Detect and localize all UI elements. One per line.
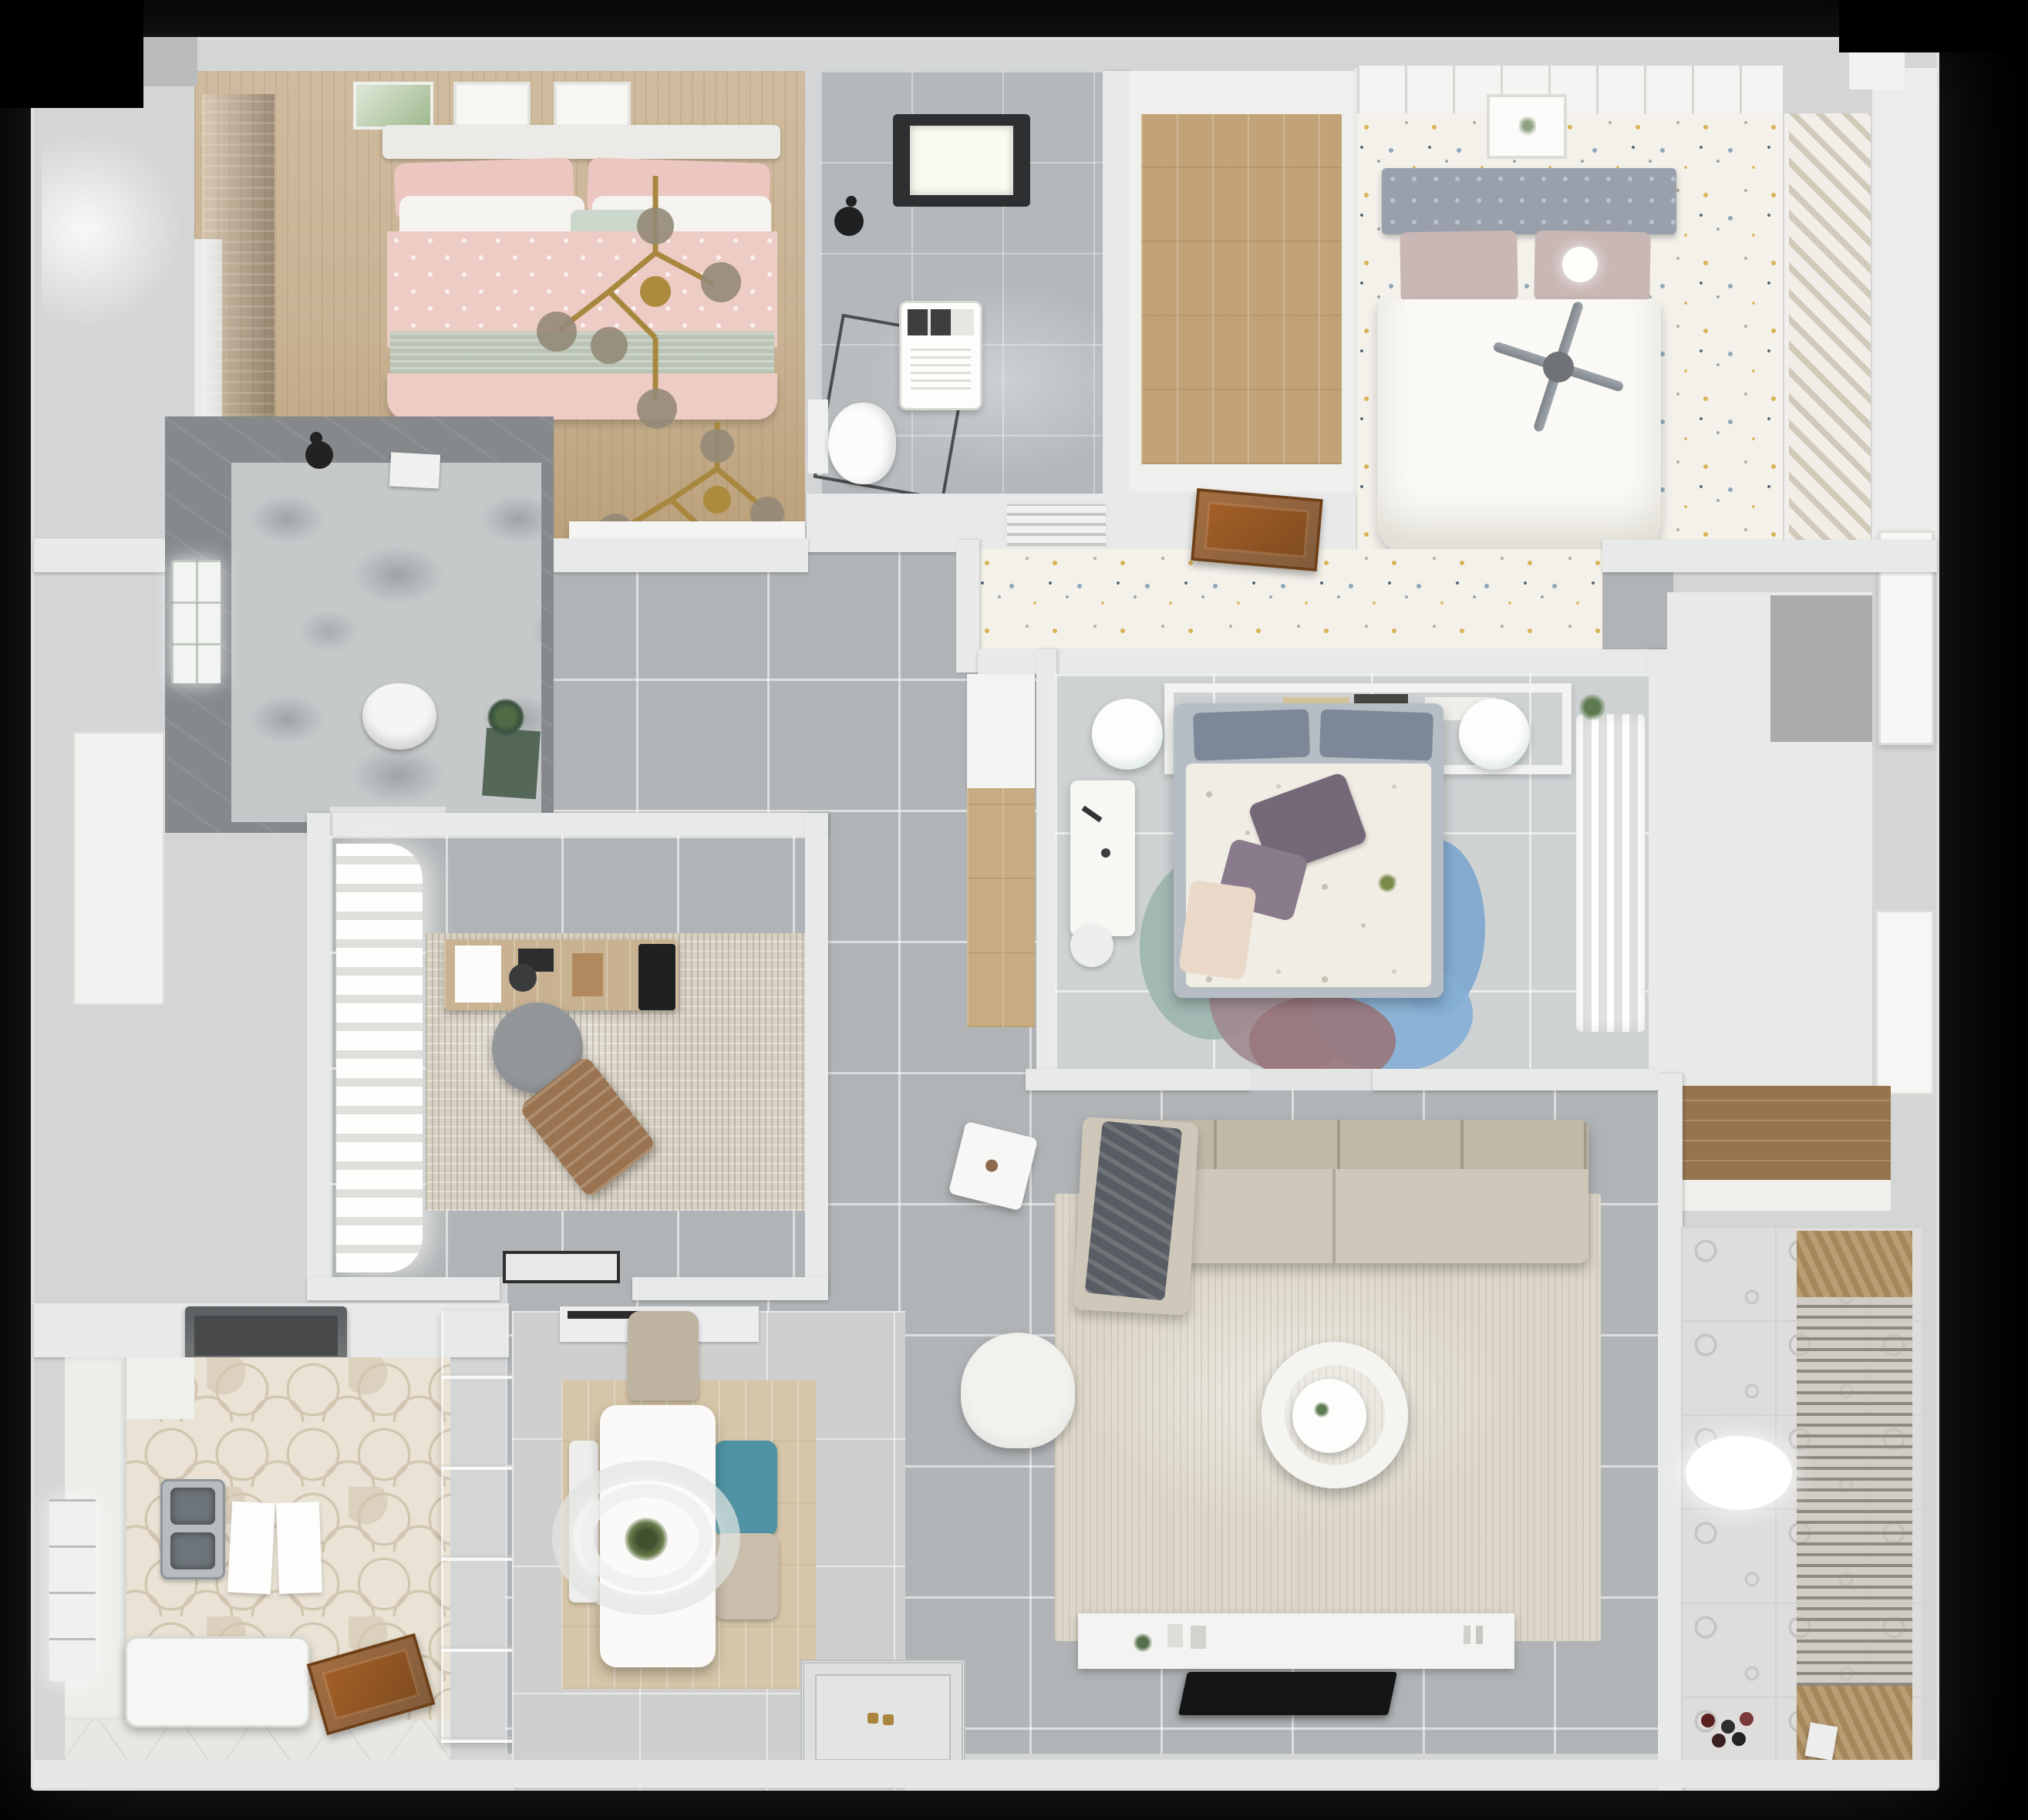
wall bbox=[307, 813, 828, 836]
wall bbox=[1658, 1073, 1683, 1791]
desk-cup bbox=[1101, 848, 1110, 858]
floorplan-scene bbox=[0, 0, 2028, 1820]
toilet bbox=[828, 403, 896, 484]
monitor bbox=[638, 944, 675, 1010]
outer-wall-bottom bbox=[34, 1760, 1936, 1788]
wall-art-green bbox=[353, 82, 433, 130]
storage-front bbox=[1670, 1180, 1891, 1211]
wall bbox=[307, 813, 330, 1297]
towel-box bbox=[389, 452, 440, 488]
bg-notch bbox=[0, 0, 143, 108]
hood-vent bbox=[194, 1316, 338, 1356]
skylight-glass bbox=[910, 126, 1013, 195]
toilet bbox=[362, 683, 436, 750]
drying-rack bbox=[1797, 1231, 1912, 1761]
sprig-green bbox=[1377, 873, 1397, 893]
bed-headboard bbox=[382, 125, 780, 159]
sink-basin bbox=[170, 1488, 215, 1525]
console-plant bbox=[1134, 1633, 1152, 1652]
rack-wood-band bbox=[1797, 1231, 1912, 1297]
dining-chair bbox=[628, 1311, 699, 1400]
study-doormat bbox=[503, 1251, 620, 1283]
pillow-cream bbox=[1178, 880, 1257, 981]
dark-block bbox=[1770, 595, 1872, 742]
storage-box bbox=[1804, 1722, 1838, 1761]
left-wall-glow bbox=[42, 130, 185, 330]
left-wall-door bbox=[72, 731, 165, 1006]
wall bbox=[307, 1277, 500, 1300]
bg-notch bbox=[1839, 0, 2028, 52]
side-table-decor bbox=[984, 1158, 999, 1173]
desk-box bbox=[572, 953, 603, 996]
wall-art-frame bbox=[554, 82, 631, 130]
closet-door bbox=[1875, 910, 1934, 1095]
plant-centerpiece bbox=[625, 1518, 668, 1561]
sofa-seat-split bbox=[1332, 1169, 1336, 1263]
desk-items bbox=[1082, 806, 1103, 823]
toilet-tank bbox=[808, 399, 828, 474]
duvet-white bbox=[1377, 299, 1661, 554]
gold-handle bbox=[867, 1713, 878, 1724]
desk-chair bbox=[1070, 924, 1113, 967]
apartment-plan bbox=[31, 37, 1939, 1791]
console-bottles bbox=[1464, 1626, 1470, 1644]
wall bbox=[632, 1277, 828, 1300]
entry-door-mat bbox=[800, 1660, 965, 1775]
nook-wood-floor bbox=[967, 788, 1035, 1027]
tufted-headboard bbox=[1382, 168, 1676, 234]
storage-wood-cabinet bbox=[1670, 1086, 1891, 1181]
sheer-wardrobe bbox=[1576, 714, 1646, 1032]
louver-wardrobe bbox=[1784, 113, 1871, 550]
wall bbox=[1036, 649, 1056, 1089]
balcony-ceiling-light bbox=[1686, 1436, 1792, 1510]
coffee-table-inner bbox=[1292, 1379, 1366, 1453]
pouf-left bbox=[1092, 699, 1163, 770]
nook-cabinet bbox=[967, 674, 1035, 788]
shower-head-icon bbox=[305, 441, 333, 469]
wall-art bbox=[1487, 94, 1567, 159]
wall bbox=[1103, 71, 1129, 512]
wall bbox=[1026, 1069, 1249, 1090]
wall bbox=[805, 813, 828, 1297]
cutting-board bbox=[227, 1501, 275, 1595]
desk-papers bbox=[455, 945, 501, 1003]
wall bbox=[1647, 649, 1667, 1089]
fan-hub bbox=[1543, 352, 1574, 383]
wall bbox=[978, 649, 1667, 674]
glass-cabinet bbox=[441, 1311, 512, 1743]
open-wood-door bbox=[1191, 488, 1323, 571]
washing-machine bbox=[899, 301, 982, 410]
wall-art-frame bbox=[453, 82, 531, 130]
art-plant-sketch bbox=[1519, 114, 1536, 137]
window bbox=[171, 560, 221, 683]
sink-basin bbox=[170, 1532, 215, 1569]
desk bbox=[1070, 780, 1135, 936]
toys bbox=[1701, 1714, 1715, 1727]
pouf-right bbox=[1459, 699, 1530, 770]
pillow-mauve bbox=[1400, 231, 1518, 304]
ac-vent bbox=[1002, 500, 1110, 551]
washer-label bbox=[911, 343, 971, 389]
billow-curtains bbox=[336, 844, 423, 1272]
room-bedroom-white-ceiling bbox=[1357, 66, 1783, 115]
wall bbox=[1373, 1069, 1667, 1090]
double-sink bbox=[160, 1479, 225, 1579]
shelf-plant bbox=[1579, 694, 1605, 720]
table-plant bbox=[1314, 1402, 1329, 1417]
desk-speaker bbox=[509, 964, 537, 992]
washer-controls bbox=[908, 309, 974, 335]
door-gap-light bbox=[1249, 1069, 1373, 1090]
wall bbox=[956, 540, 979, 672]
wall bbox=[1602, 540, 1937, 572]
armchair bbox=[961, 1333, 1075, 1448]
hall-right bbox=[1872, 68, 1937, 551]
shower-head-icon bbox=[834, 207, 864, 236]
tv-console bbox=[1078, 1613, 1514, 1669]
console-frames bbox=[1167, 1624, 1183, 1647]
cutting-board bbox=[276, 1501, 322, 1594]
wood-floor bbox=[1141, 114, 1342, 464]
tv bbox=[1178, 1672, 1397, 1715]
kitchen-counter-top bbox=[126, 1357, 194, 1419]
pillow-gray bbox=[1319, 709, 1433, 760]
island-counter bbox=[125, 1636, 310, 1727]
ball-lamp bbox=[1562, 247, 1598, 282]
bath-mat bbox=[482, 728, 541, 800]
kitchen-window bbox=[49, 1499, 96, 1681]
pillow-gray bbox=[1193, 709, 1310, 760]
